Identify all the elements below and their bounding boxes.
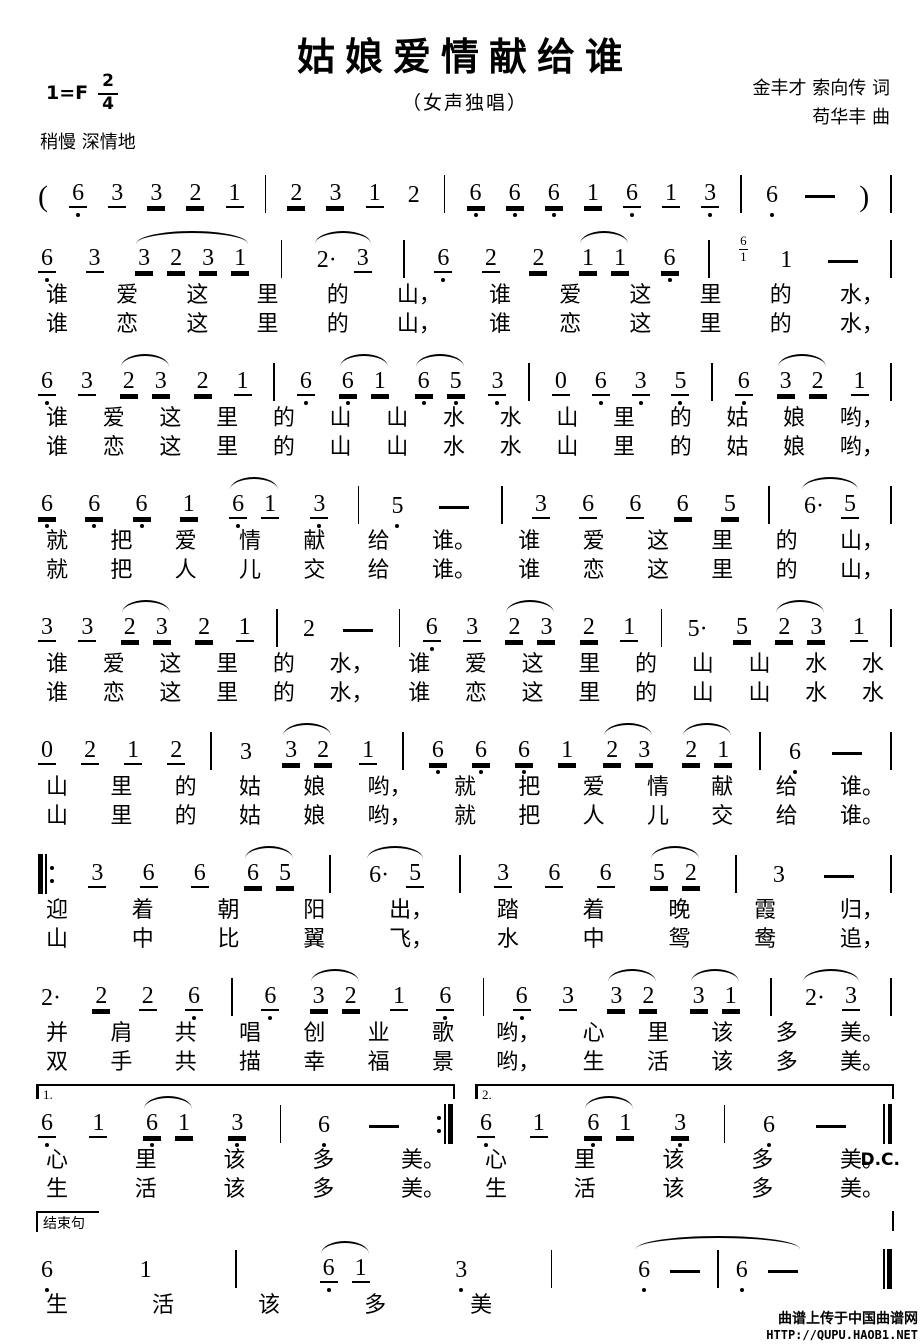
barline (280, 1105, 282, 1143)
note-digit: 3 (326, 180, 344, 208)
note: 3 (326, 180, 344, 208)
note: 6 (140, 860, 158, 888)
note-digit: 6 (191, 860, 209, 888)
lyric-syllable: 里 (613, 433, 635, 462)
note: 2 (167, 737, 185, 765)
lyric-syllable: 多 (312, 1146, 334, 1175)
lyric-syllable: 谁 (46, 679, 68, 708)
note-digit: 2 (287, 180, 305, 208)
note: 0 (38, 737, 56, 765)
low-octave-dot (459, 1288, 463, 1292)
lyric-syllable: 把 (518, 802, 540, 831)
note-digit: 1 (352, 1255, 370, 1283)
lyric-syllable: 里 (574, 1146, 596, 1175)
note: 6 (579, 491, 597, 519)
lyric-syllable: 恋 (116, 310, 138, 339)
lyric-syllable: 水 (443, 404, 465, 433)
note: 2 (603, 737, 621, 765)
note-digit: 5 (671, 368, 689, 396)
lyrics-row: 谁爱这里的水，谁爱这里的山山水水 (36, 650, 894, 679)
lyric-syllable: 娘 (783, 433, 805, 462)
note-digit: 1 (851, 368, 869, 396)
note: 6 (143, 1110, 161, 1138)
lyrics-row: 谁恋这里的水，谁恋这里的山山水水 (36, 679, 894, 708)
note: 6 (760, 1112, 778, 1138)
note-digit: 2 (682, 737, 700, 765)
note-digit: 6 (579, 491, 597, 519)
lyric-syllable: 哟， (368, 773, 412, 802)
lyrics-row: 生活该多美。 (475, 1175, 894, 1204)
note: 6 (661, 245, 679, 273)
barline (528, 363, 530, 401)
note: 1 (236, 614, 254, 642)
meter-numerator: 2 (98, 72, 118, 95)
note: 2 (120, 368, 138, 396)
note: 6 (515, 737, 533, 765)
note: 6 (229, 491, 247, 519)
note: 1 (584, 180, 602, 208)
slur-group: 65 (242, 860, 296, 888)
note-digit: 2 (809, 368, 827, 396)
coda-label-row: 结束句 (36, 1211, 894, 1233)
lyric-syllable: 情 (239, 527, 261, 556)
low-octave-dot (192, 1016, 196, 1020)
lyric-syllable: 给 (776, 802, 798, 831)
note-digit: 3 (310, 491, 328, 519)
lyric-syllable: 山 (556, 433, 578, 462)
note: 1 (558, 737, 576, 765)
lyric-syllable: 这 (629, 310, 651, 339)
lyric-syllable: 哟， (496, 1019, 540, 1048)
lyric-syllable: 水 (805, 650, 827, 679)
grace-note: 61 (739, 234, 748, 265)
lyric-syllable: 描 (239, 1048, 261, 1077)
low-octave-dot (770, 213, 774, 217)
note-digit: 2 (92, 983, 110, 1011)
slur-group: 23 (119, 614, 173, 642)
lyric-syllable: 美。 (401, 1146, 445, 1175)
lyric-syllable: 该 (662, 1146, 684, 1175)
note: 6· (366, 862, 392, 888)
note: 6 (545, 860, 563, 888)
note-digit: 3 (86, 245, 104, 273)
lyric-syllable: 这 (159, 433, 181, 462)
barline (890, 609, 892, 647)
lyric-syllable: 娘 (303, 773, 325, 802)
note-digit: 2 (194, 368, 212, 396)
lyric-syllable: 里 (110, 773, 132, 802)
note-digit: 1 (850, 614, 868, 642)
note: 3 (38, 614, 56, 642)
lyric-syllable: 把 (518, 773, 540, 802)
note: 0 (552, 368, 570, 396)
note-digit: 1 (579, 245, 597, 273)
score: (63321231266616136)6332312·3622116611谁爱这… (36, 158, 894, 1320)
note-digit: 1 (777, 247, 795, 273)
note-digit: 5 (276, 860, 294, 888)
low-octave-dot (441, 278, 445, 282)
low-octave-dot (268, 1016, 272, 1020)
note-digit: 6 (140, 860, 158, 888)
lyric-syllable: 这 (159, 404, 181, 433)
lyric-syllable: 水 (862, 650, 884, 679)
lyric-syllable: 归， (840, 896, 884, 925)
barline (329, 855, 331, 893)
note-digit: 1 (261, 491, 279, 519)
lyric-syllable: 谁。 (432, 527, 476, 556)
barline (235, 1250, 237, 1288)
note-digit: 6 (69, 180, 87, 208)
lyric-syllable: 迎 (46, 896, 68, 925)
note-digit: 3 (38, 614, 56, 642)
note: 2 (529, 245, 547, 273)
slur-group: 23 (601, 737, 655, 765)
note-digit: 3 (463, 614, 481, 642)
note-digit: 2 (139, 983, 157, 1011)
lyrics-row: 山里的姑娘哟，就把人儿交给谁。 (36, 802, 894, 831)
lyric-syllable: 恋 (465, 679, 487, 708)
lyric-syllable: 美 (470, 1291, 492, 1320)
notes-row: 66616135366656·5 (36, 469, 894, 527)
lyric-syllable: 谁 (489, 310, 511, 339)
note: 1 (234, 368, 252, 396)
lyric-syllable: 晚 (668, 896, 690, 925)
low-octave-dot (708, 213, 712, 217)
note-digit: 5 (447, 368, 465, 396)
notes-row: 6332312·3622116611 (36, 223, 894, 281)
lyric-syllable: 哟， (368, 802, 412, 831)
lyric-syllable: 的 (770, 310, 792, 339)
lyric-syllable: 爱 (103, 650, 125, 679)
note: 2 (139, 983, 157, 1011)
note-digit: 6 (315, 1112, 333, 1138)
lyric-syllable: 里 (613, 404, 635, 433)
lyric-syllable: 歌 (432, 1019, 454, 1048)
note: 3 (86, 245, 104, 273)
lyric-syllable: 美。 (840, 1048, 884, 1077)
note-digit: 3 (532, 491, 550, 519)
note-digit: 1 (616, 1110, 634, 1138)
composer-credit: 苟华丰 曲 (753, 103, 890, 132)
barline (276, 609, 278, 647)
note-digit: 6 (38, 491, 56, 519)
low-octave-dot (317, 524, 321, 528)
low-octave-dot (443, 1016, 447, 1020)
barline (281, 240, 283, 278)
note: 3 (842, 983, 860, 1011)
music-system: 6332312·3622116611谁爱这里的山，谁爱这里的水，谁恋这里的山，谁… (36, 223, 894, 339)
low-octave-dot (678, 1143, 682, 1147)
barline (890, 855, 892, 893)
note: 3 (78, 368, 96, 396)
lyric-syllable: 谁 (46, 404, 68, 433)
lyric-syllable: 山， (397, 281, 441, 310)
lyric-syllable: 多 (312, 1175, 334, 1204)
lyric-syllable: 爱 (465, 650, 487, 679)
notes-row: 6161366 (36, 1233, 894, 1291)
lyric-syllable: 活 (152, 1291, 174, 1320)
note-digit: 2 (603, 737, 621, 765)
note: 5· (685, 616, 711, 642)
lyrics-row: 迎着朝阳出，踏着晚霞归， (36, 896, 894, 925)
note-digit: 6 (38, 1110, 56, 1138)
note-digit: 6 (297, 368, 315, 396)
note: 6 (545, 180, 563, 208)
lyric-syllable: 的 (776, 527, 798, 556)
lyric-syllable: 爱 (175, 527, 197, 556)
slur-group: 61 (582, 1110, 636, 1138)
low-octave-dot (454, 401, 458, 405)
note-digit: 3 (488, 368, 506, 396)
note-digit: 6 (320, 1255, 338, 1283)
note: 1 (611, 245, 629, 273)
lyric-syllable: 恋 (583, 556, 605, 585)
lyric-syllable: 这 (629, 281, 651, 310)
tempo-marking: 稍慢 深情地 (40, 128, 136, 154)
lyric-syllable: 里 (578, 650, 600, 679)
lyrics-row: 山中比翼飞，水中鸳鸯追， (36, 925, 894, 954)
barline (708, 240, 710, 278)
low-octave-dot (236, 524, 240, 528)
lyric-syllable: 这 (159, 650, 181, 679)
note: 2 (775, 614, 793, 642)
note: 6 (38, 245, 56, 273)
lyric-syllable: 里 (578, 679, 600, 708)
note-digit: 5 (721, 491, 739, 519)
lyric-syllable: 活 (135, 1175, 157, 1204)
lyric-syllable: 的 (273, 404, 295, 433)
slur-group: 61 (337, 368, 391, 396)
lyric-syllable: 谁。 (840, 802, 884, 831)
lyric-syllable: 业 (368, 1019, 390, 1048)
note-digit: 1 (124, 737, 142, 765)
note: 6 (315, 1112, 333, 1138)
note-digit: 6 (513, 983, 531, 1011)
note: 2 (167, 245, 185, 273)
repeat-dots (436, 1104, 442, 1144)
note: 3 (770, 862, 788, 888)
low-octave-dot (422, 401, 426, 405)
note: 3 (701, 180, 719, 208)
low-octave-dot (140, 524, 144, 528)
lyric-syllable: 爱 (116, 281, 138, 310)
repeat-dot (437, 1116, 441, 1120)
slur-group: 61 (318, 1255, 372, 1283)
lyric-syllable: 幸 (303, 1048, 325, 1077)
notes-row: 02123321666123216 (36, 715, 894, 773)
note-digit: 0 (38, 737, 56, 765)
music-system: 结束句6161366生活该多美 (36, 1211, 894, 1320)
note-digit: 1 (620, 614, 638, 642)
slur-group: 2·3 (800, 983, 862, 1011)
notes-row: 2·226632166332312·3 (36, 961, 894, 1019)
note-digit: 6 (515, 737, 533, 765)
note: 2 (195, 614, 213, 642)
note: 3 (532, 491, 550, 519)
note: 1 (137, 1257, 155, 1283)
note: 6 (436, 983, 454, 1011)
low-octave-dot (642, 1288, 646, 1292)
note: 1 (352, 1255, 370, 1283)
low-octave-dot (630, 213, 634, 217)
lyric-syllable: 姑 (726, 433, 748, 462)
note-digit: 3 (690, 983, 708, 1011)
lyric-syllable: 姑 (239, 802, 261, 831)
low-octave-dot (552, 213, 556, 217)
note-digit: 3 (671, 1110, 689, 1138)
note-digit: 6 (674, 491, 692, 519)
lyric-syllable: 鸳 (668, 925, 690, 954)
credits: 金丰才 索向传 词 苟华丰 曲 (753, 74, 890, 132)
note: 2 (482, 245, 500, 273)
note-digit: 5 (388, 493, 406, 519)
barline (265, 175, 267, 213)
volta-2: 2.616136心里该多美。生活该多美。D.C. (475, 1084, 894, 1204)
lyric-syllable: 人 (175, 556, 197, 585)
note: 6 (423, 614, 441, 642)
low-octave-dot (740, 1288, 744, 1292)
note-digit: 3 (770, 862, 788, 888)
note: 3 (632, 368, 650, 396)
note-digit: 6· (801, 493, 827, 519)
repeat-dot (437, 1129, 441, 1133)
note: 2 (682, 860, 700, 888)
lyric-syllable: 里 (257, 281, 279, 310)
slur-group: 23 (503, 614, 557, 642)
note-digit: 5· (685, 616, 711, 642)
lyrics-row: 生活该多美。 (36, 1175, 455, 1204)
note-digit: 6· (366, 862, 392, 888)
note-digit: 6 (545, 860, 563, 888)
note: 3 (494, 860, 512, 888)
music-system: 66616135366656·5就把爱情献给谁。谁爱这里的山，就把人儿交给谁。谁… (36, 469, 894, 585)
notes-row: 366656·5366523 (36, 838, 894, 896)
note-digit: 6 (423, 614, 441, 642)
grace-top: 6 (739, 234, 748, 250)
low-octave-dot (436, 770, 440, 774)
note: 2 (92, 983, 110, 1011)
note: 1 (777, 247, 795, 273)
note-digit: 1 (611, 245, 629, 273)
note: 6 (597, 860, 615, 888)
lyric-syllable: 并 (46, 1019, 68, 1048)
lyric-syllable: 共 (175, 1019, 197, 1048)
lyric-syllable: 该 (258, 1291, 280, 1320)
song-title: 姑娘爱情献给谁 (36, 26, 894, 81)
note-digit: 6 (733, 1257, 751, 1283)
note-digit: 2 (120, 368, 138, 396)
note: 5 (406, 860, 424, 888)
lyric-syllable: 鸯 (754, 925, 776, 954)
note-digit: 2 (314, 737, 332, 765)
low-octave-dot (322, 1143, 326, 1147)
note-digit: 3 (452, 1257, 470, 1283)
note: 2 (682, 737, 700, 765)
lyric-syllable: 山 (46, 925, 68, 954)
bar-thick (887, 1249, 892, 1289)
note: 1 (371, 368, 389, 396)
note-digit: 6 (133, 491, 151, 519)
meter-denominator: 4 (102, 95, 114, 115)
lyric-syllable: 共 (175, 1048, 197, 1077)
note: 6 (477, 1110, 495, 1138)
barline (551, 1250, 553, 1288)
low-octave-dot (235, 1143, 239, 1147)
note: 3 (78, 614, 96, 642)
lyric-syllable: 谁 (408, 650, 430, 679)
barline (459, 855, 461, 893)
note: 6 (38, 491, 56, 519)
note-digit: 1 (366, 180, 384, 208)
low-octave-dot (513, 213, 517, 217)
end-repeat-barline (436, 1104, 453, 1144)
lyric-syllable: 肩 (110, 1019, 132, 1048)
slur-group: 65 (413, 368, 467, 396)
lyric-syllable: 美。 (401, 1175, 445, 1204)
lyric-syllable: 的 (273, 650, 295, 679)
volta-system: 1.616136心里该多美。生活该多美。2.616136心里该多美。生活该多美。… (36, 1084, 894, 1204)
bar-thin (45, 854, 47, 894)
note: 2 (639, 983, 657, 1011)
note-digit: 2 (529, 245, 547, 273)
lyric-syllable: 朝 (218, 896, 240, 925)
lyric-syllable: 哟， (496, 1048, 540, 1077)
lyric-syllable: 生 (583, 1048, 605, 1077)
volta-label: 1. (43, 1087, 53, 1103)
lyric-syllable: 山 (556, 404, 578, 433)
lyric-syllable: 水 (443, 433, 465, 462)
note: 6 (623, 180, 641, 208)
lyric-syllable: 的 (327, 310, 349, 339)
dash-extend (369, 1125, 399, 1128)
repeat-dots (49, 854, 55, 894)
note: 3 (152, 368, 170, 396)
lyricist-credit: 金丰才 索向传 词 (753, 74, 890, 103)
note: 2 (580, 614, 598, 642)
note: 2 (505, 614, 523, 642)
lyric-syllable: 谁 (518, 556, 540, 585)
note: 3 (153, 614, 171, 642)
note: 6 (467, 180, 485, 208)
lyric-syllable: 的 (776, 556, 798, 585)
note: 5 (650, 860, 668, 888)
note: 3 (777, 368, 795, 396)
lyric-syllable: 就 (454, 773, 476, 802)
lyric-syllable: 该 (711, 1019, 733, 1048)
lyric-syllable: 的 (670, 433, 692, 462)
low-octave-dot (327, 1288, 331, 1292)
barline (661, 609, 663, 647)
lyric-syllable: 就 (454, 802, 476, 831)
note-digit: 6 (635, 1257, 653, 1283)
lyric-syllable: 爱 (583, 527, 605, 556)
note-digit: 3 (777, 368, 795, 396)
sheet-music-page: 姑娘爱情献给谁 （女声独唱） 1=F 2 4 金丰才 索向传 词 苟华丰 曲 稍… (0, 0, 924, 1320)
bar-thin (444, 1104, 446, 1144)
lyric-syllable: 山 (330, 404, 352, 433)
note: 3 (807, 614, 825, 642)
lyric-syllable: 该 (223, 1146, 245, 1175)
note-digit: 3 (108, 180, 126, 208)
footer-site-text: 曲谱上传于中国曲谱网 (766, 1311, 918, 1328)
note: 6 (786, 739, 804, 765)
music-system: (63321231266616136) (36, 158, 894, 216)
low-octave-dot (522, 770, 526, 774)
lyric-syllable: 里 (216, 650, 238, 679)
lyric-syllable: 水， (840, 281, 884, 310)
lyric-syllable: 多 (751, 1146, 773, 1175)
slur-group: 32 (605, 983, 659, 1011)
